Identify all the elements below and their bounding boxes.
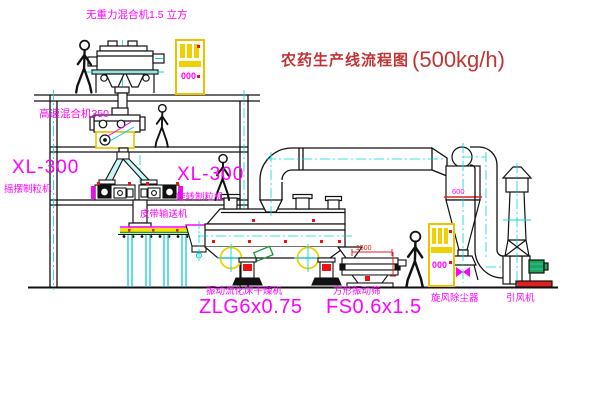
gravity-free-mixer: [88, 41, 164, 110]
cyclone-dimension: 600: [452, 187, 465, 196]
title-capacity: (500kg/h): [412, 50, 505, 70]
label-granulator-left-name: 摇摆制粒机: [4, 185, 52, 195]
cabinet-roof-display: 000: [181, 71, 196, 81]
label-high-speed-mixer: 高速混合机350: [39, 109, 109, 120]
dryer-legs: [233, 258, 341, 285]
label-granulator-right-name: 旋转制粒机: [176, 193, 224, 203]
control-cabinet-floor: 000: [429, 224, 454, 286]
vibrating-sieve: [340, 258, 406, 287]
label-granulator-left-model: XL-300: [12, 158, 79, 177]
sieve-dimension-text: 1500: [356, 245, 372, 252]
diagram-title: 农药生产线流程图 (500kg/h): [281, 49, 505, 70]
control-cabinet-roof: 000: [176, 40, 204, 94]
label-granulator-right-model: XL-300: [177, 165, 244, 184]
label-cyclone: 旋风除尘器: [431, 294, 479, 304]
y-chute: [99, 152, 157, 184]
label-fan: 引风机: [506, 294, 535, 304]
label-sieve-model: FS0.6x1.5: [326, 297, 422, 317]
cabinet-floor-display: 000: [432, 260, 447, 270]
fan-base: [516, 281, 552, 287]
label-belt-conveyor: 皮带输送机: [140, 210, 188, 220]
granulator-left: [91, 182, 135, 200]
title-chinese: 农药生产线流程图: [281, 49, 409, 70]
fan-motor: [529, 260, 544, 273]
duct-centerlines: [266, 152, 446, 216]
label-gravity-free-mixer: 无重力混合机1.5 立方: [86, 10, 188, 21]
person-floor2: [155, 105, 167, 147]
induced-draft-fan: [503, 167, 552, 287]
conveyor-legs: [128, 235, 186, 287]
dryer-exhaust-duct: [260, 148, 447, 212]
person-ground: [406, 232, 422, 287]
pesticide-line-flow-diagram: 000: [0, 0, 600, 403]
label-dryer-model: ZLG6x0.75: [199, 297, 302, 317]
belt-conveyor: [118, 227, 200, 287]
